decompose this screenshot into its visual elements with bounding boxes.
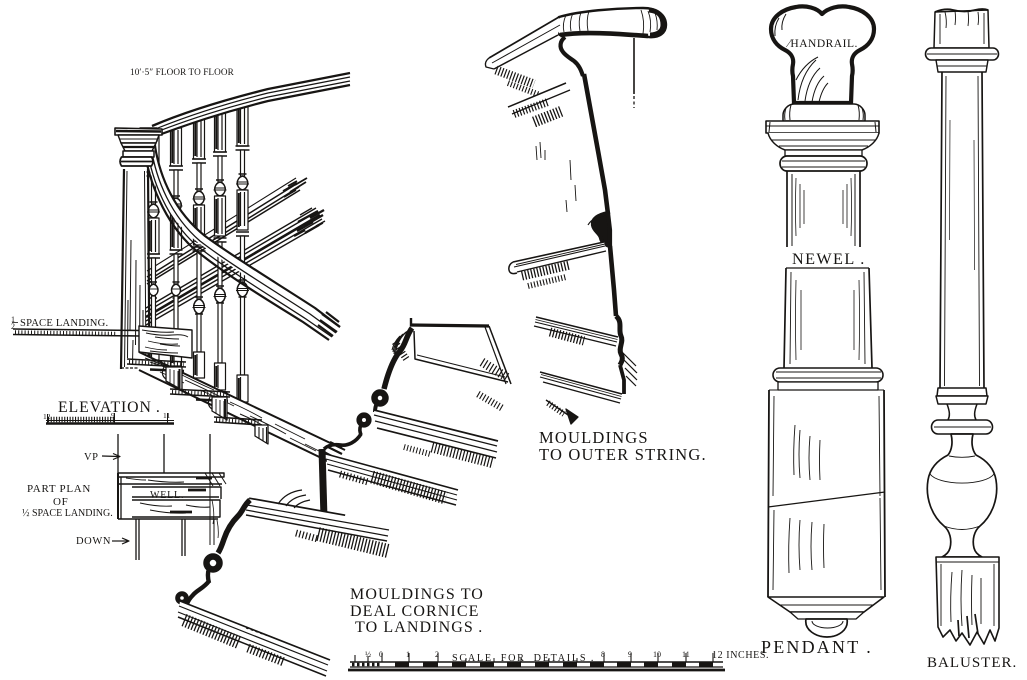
svg-text:BALUSTER.: BALUSTER.: [927, 655, 1017, 671]
svg-text:MOULDINGS TO: MOULDINGS TO: [350, 586, 484, 603]
svg-text:TO OUTER STRING.: TO OUTER STRING.: [539, 445, 707, 464]
svg-text:SPACE LANDING.: SPACE LANDING.: [20, 318, 108, 329]
svg-text:½ SPACE LANDING.: ½ SPACE LANDING.: [22, 508, 113, 519]
svg-text:WELL.: WELL.: [150, 490, 184, 501]
svg-text:∕HANDRAIL.: ∕HANDRAIL.: [785, 38, 858, 50]
svg-text:PENDANT .: PENDANT .: [761, 637, 873, 657]
svg-text:10′·5″ FLOOR TO FLOOR: 10′·5″ FLOOR TO FLOOR: [130, 67, 235, 77]
svg-text:VP: VP: [84, 452, 98, 463]
svg-text:DEAL CORNICE: DEAL CORNICE: [350, 603, 480, 620]
svg-text:NEWEL .: NEWEL .: [792, 250, 866, 268]
svg-text:12 INCHES.: 12 INCHES.: [712, 650, 769, 661]
svg-text:DOWN: DOWN: [76, 536, 111, 547]
svg-text:TO LANDINGS .: TO LANDINGS .: [355, 619, 483, 636]
svg-text:10: 10: [653, 650, 661, 659]
svg-text:ELEVATION .: ELEVATION .: [58, 399, 161, 416]
svg-text:12: 12: [43, 412, 51, 421]
svg-text:PART PLAN: PART PLAN: [27, 483, 91, 495]
svg-text:OF: OF: [53, 496, 68, 508]
svg-text:11: 11: [163, 411, 170, 420]
